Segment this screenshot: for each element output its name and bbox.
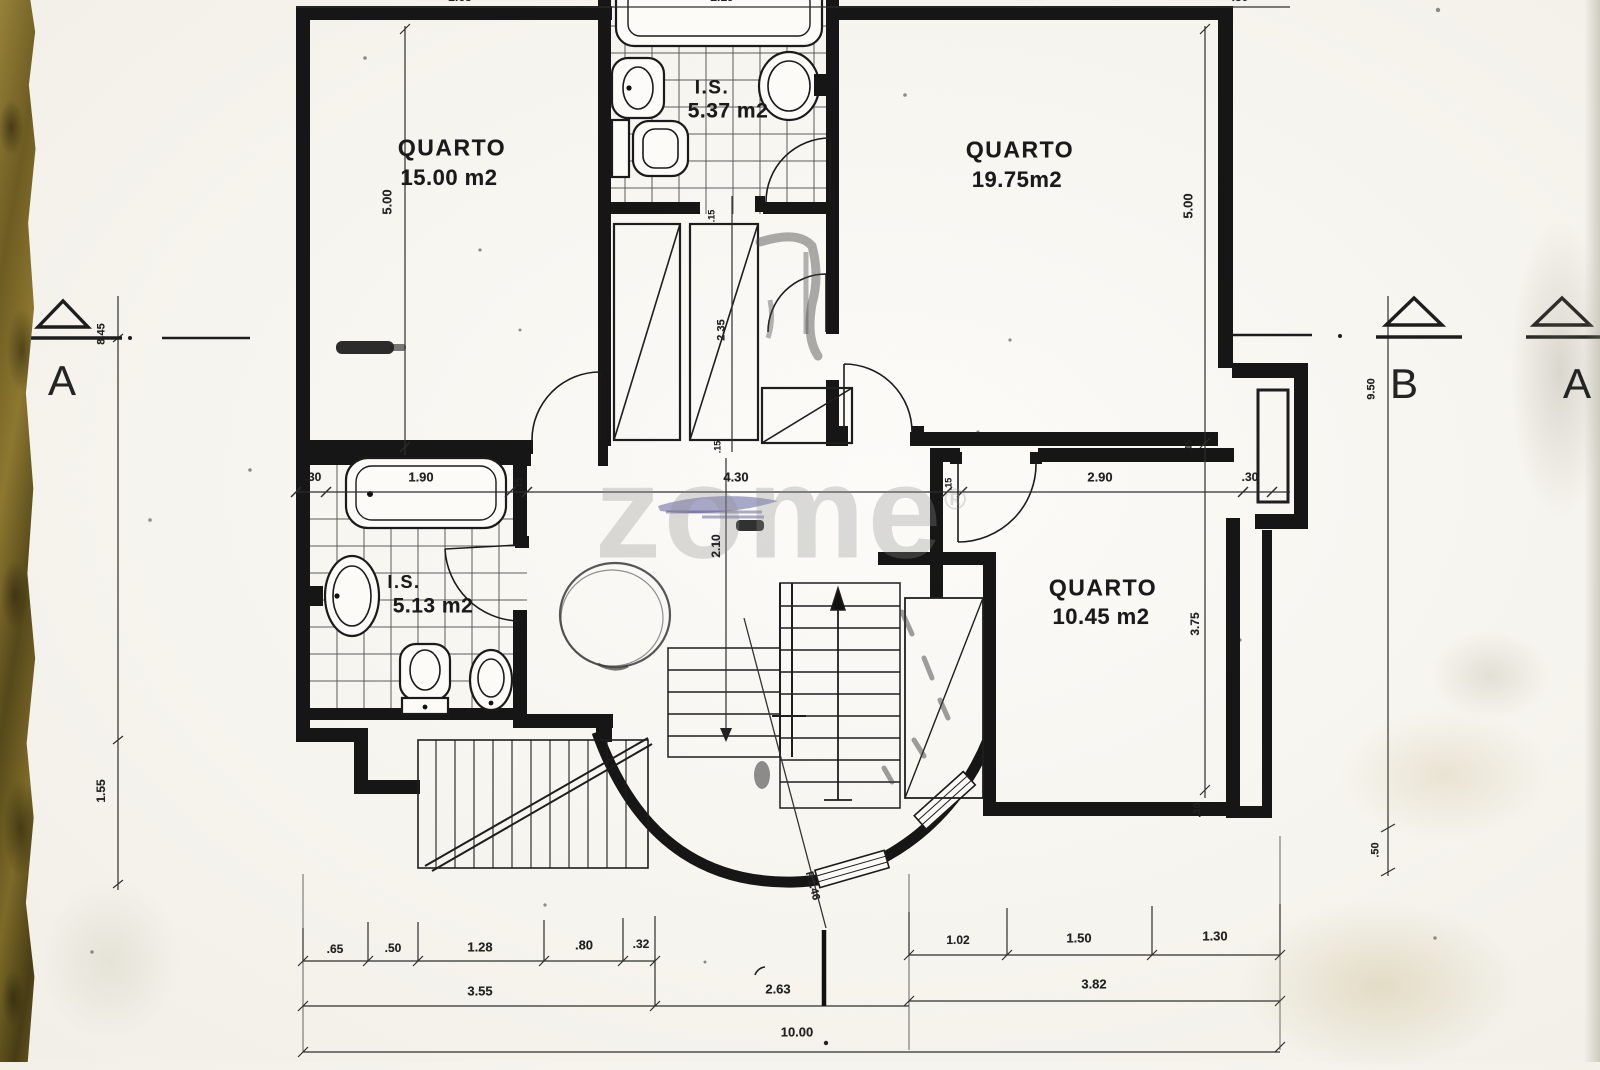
dim-.80: .80 [575,939,593,952]
dim-.50-vert-right: .50 [1371,842,1382,857]
room-area-is1: 5.37 m2 [688,101,769,122]
watermark: zome® [595,437,970,588]
dim-top-.50-clipped: .50 [1232,0,1249,3]
dim-top-2.65-clipped: 2.65 [448,0,471,3]
dim-2.63: 2.63 [765,983,790,996]
dim-.15-d: .15 [945,478,954,491]
dim-.65: .65 [327,943,344,955]
dim-.15-a: .15 [708,210,717,223]
toilet-left-icon [400,644,450,714]
bathtub-left-icon [346,458,506,528]
dim-1.50: 1.50 [1066,932,1091,945]
sink-top-icon [759,52,830,120]
dim-.15-b: .15 [714,441,723,454]
room-area-quarto1: 15.00 m2 [401,167,498,189]
dim-.15-c: .15 [515,478,524,491]
dim-top-3.93-clipped: 3.93 [1020,0,1043,2]
bidet-left-icon [470,650,512,710]
walls [296,0,1308,818]
dim-2.90: 2.90 [1087,471,1112,484]
dim-top-2.19-clipped: 2.19 [710,0,733,3]
exterior-stair [418,738,652,871]
section-line [28,334,1342,340]
section-triangle-b [1386,298,1442,325]
dim-10.00: 10.00 [781,1026,814,1039]
room-label-is1: I.S. [695,79,730,98]
section-letter-a-left: A [48,360,76,402]
floorplan-sheet: zome® QUARTO 15.00 m2 I.S. 5.37 m2 QUART… [0,0,1600,1062]
scanned-floorplan-page: { "watermark": {"text": "zome", "reg": "… [0,0,1600,1062]
dim-1.30: 1.30 [1202,930,1227,943]
dim-1.90: 1.90 [408,471,433,484]
room-area-is2: 5.13 m2 [393,596,474,617]
dim-5.00-left: 5.00 [381,189,394,214]
scan-right-edge [1584,0,1600,1062]
bay-window-1 [815,850,889,887]
dim-1.55: 1.55 [95,779,107,802]
room-label-quarto3: QUARTO [1049,577,1157,600]
sink-left-icon [310,556,379,636]
dim-9.50: 9.50 [1367,378,1378,399]
dim-.32: .32 [633,938,650,950]
dim-1.02: 1.02 [946,934,969,946]
bidet-top-icon [612,58,664,118]
toilet-top-icon [612,120,688,177]
room-label-is2: I.S. [387,573,420,591]
section-letter-a-right: A [1563,363,1591,405]
room-area-quarto2: 19.75m2 [972,169,1062,191]
dim-3.82: 3.82 [1081,978,1106,991]
section-triangle-a-right [1534,298,1590,325]
room-label-quarto2: QUARTO [966,139,1074,162]
room-area-quarto3: 10.45 m2 [1053,606,1150,628]
dim-5.00-right: 5.00 [1182,193,1195,218]
bay-window-2 [914,772,975,830]
dim-.30-vert-right: .30 [1193,802,1204,817]
dim-.30-right: .30 [1242,471,1259,483]
dim-2.10: 2.10 [710,534,722,557]
section-triangle-a-left [38,301,88,327]
section-letter-b: B [1390,363,1418,405]
staircase [668,583,900,808]
dim-2.35: 2.35 [717,319,728,340]
dim-.30-left: .30 [305,471,322,483]
dim-1.28: 1.28 [467,941,492,954]
dim-4.30: 4.30 [723,471,748,484]
dim-3.55: 3.55 [467,985,492,998]
dim-3.75: 3.75 [1189,612,1201,635]
dim-8.45: 8.45 [97,323,108,344]
room-label-quarto1: QUARTO [398,137,506,160]
dim-.50: .50 [385,942,402,954]
dim-.15-e: .15 [1185,440,1194,453]
